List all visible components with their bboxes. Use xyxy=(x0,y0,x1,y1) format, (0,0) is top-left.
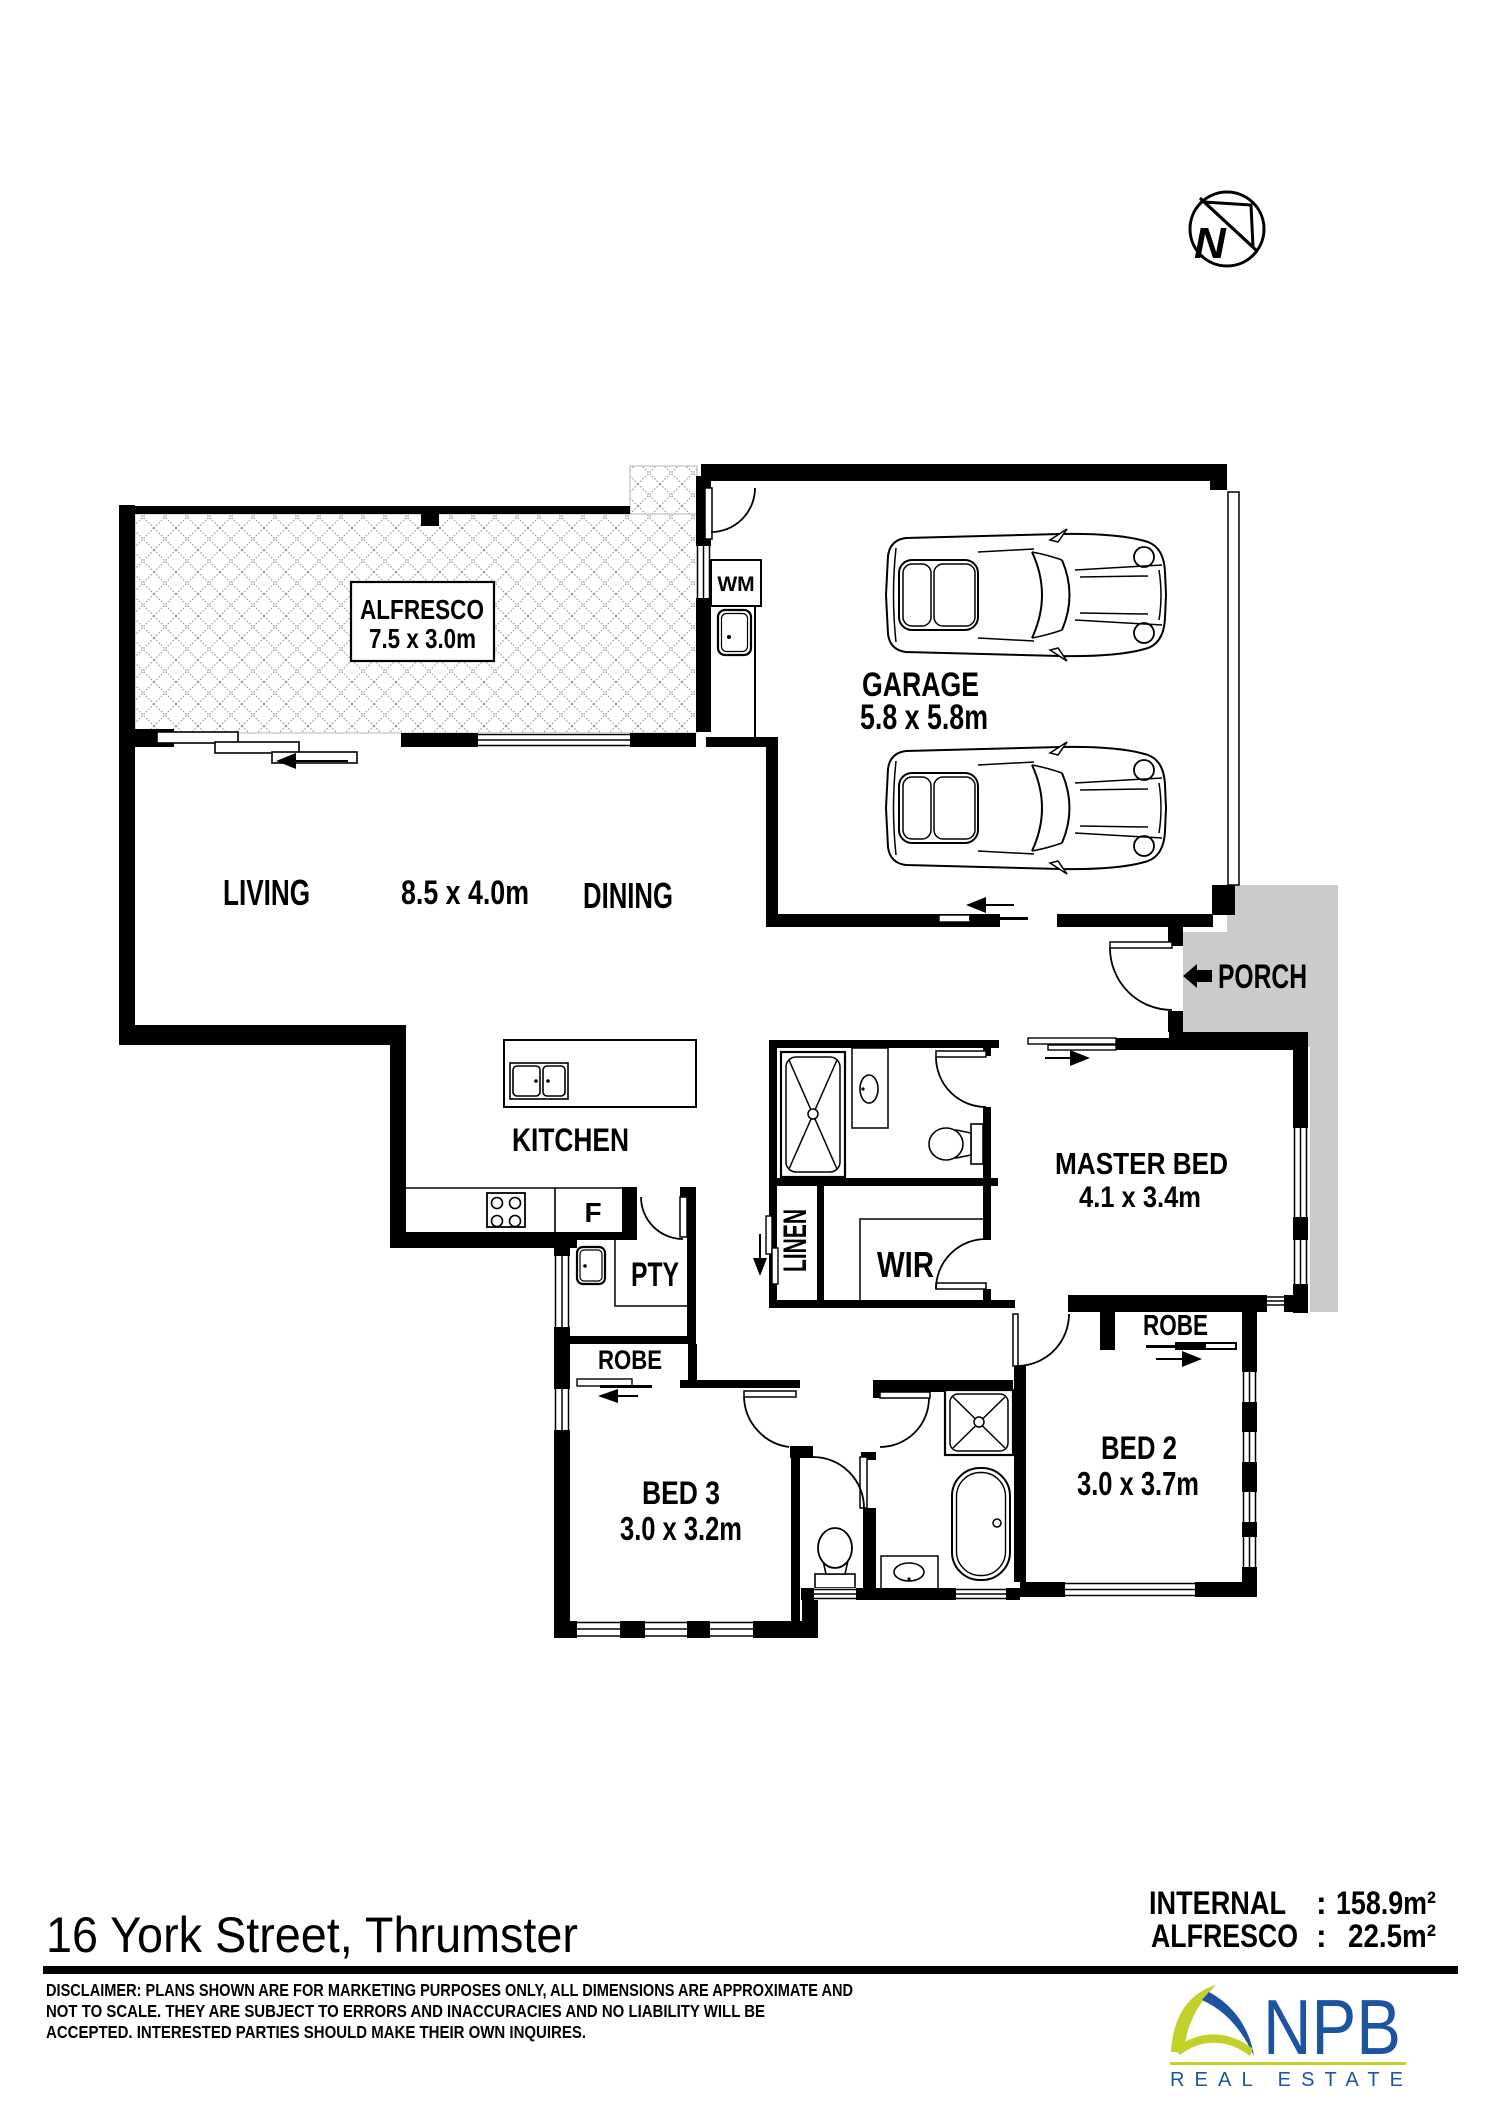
svg-text:INTERNAL: INTERNAL xyxy=(1149,1885,1286,1921)
svg-text::: : xyxy=(1316,1885,1327,1921)
svg-text:BED 2: BED 2 xyxy=(1101,1430,1177,1466)
svg-text:8.5 x 4.0m: 8.5 x 4.0m xyxy=(401,874,529,912)
svg-text:MASTER BED: MASTER BED xyxy=(1055,1146,1228,1181)
svg-text:3.0 x 3.7m: 3.0 x 3.7m xyxy=(1077,1465,1199,1502)
svg-text:NOT TO SCALE. THEY ARE SUBJE: NOT TO SCALE. THEY ARE SUBJECT TO ERRORS… xyxy=(46,2001,765,2021)
svg-text:22.5m²: 22.5m² xyxy=(1348,1918,1436,1954)
svg-text:ALFRESCO: ALFRESCO xyxy=(360,594,484,625)
svg-text:REAL ESTATE: REAL ESTATE xyxy=(1170,2069,1403,2091)
svg-text:DINING: DINING xyxy=(583,875,673,916)
svg-text:3.0 x 3.2m: 3.0 x 3.2m xyxy=(620,1510,742,1547)
svg-text:NPB: NPB xyxy=(1263,1983,1401,2071)
svg-text:BED 3: BED 3 xyxy=(642,1475,720,1511)
svg-text:PTY: PTY xyxy=(631,1256,679,1294)
svg-text:LIVING: LIVING xyxy=(223,872,310,913)
svg-text:PORCH: PORCH xyxy=(1218,958,1307,996)
svg-text:ALFRESCO: ALFRESCO xyxy=(1151,1918,1298,1954)
svg-text:5.8 x 5.8m: 5.8 x 5.8m xyxy=(860,698,988,737)
svg-text::: : xyxy=(1316,1918,1327,1954)
svg-text:ROBE: ROBE xyxy=(1143,1310,1208,1342)
svg-text:ROBE: ROBE xyxy=(598,1345,662,1375)
svg-text:DISCLAIMER: PLANS SHOWN ARE FO: DISCLAIMER: PLANS SHOWN ARE FOR MARKETIN… xyxy=(46,1980,853,2000)
svg-text:LINEN: LINEN xyxy=(777,1209,813,1272)
svg-text:ACCEPTED. INTERESTED PARTIES S: ACCEPTED. INTERESTED PARTIES SHOULD MAKE… xyxy=(46,2022,586,2042)
svg-text:N: N xyxy=(1194,219,1227,268)
svg-text:WM: WM xyxy=(717,573,754,596)
svg-text:16 York Street, Thrumster: 16 York Street, Thrumster xyxy=(46,1907,578,1963)
svg-text:WIR: WIR xyxy=(877,1244,934,1285)
svg-text:7.5 x 3.0m: 7.5 x 3.0m xyxy=(369,623,476,654)
svg-text:4.1 x 3.4m: 4.1 x 3.4m xyxy=(1079,1181,1201,1214)
svg-text:F: F xyxy=(584,1197,601,1228)
svg-text:KITCHEN: KITCHEN xyxy=(512,1122,629,1158)
svg-text:158.9m²: 158.9m² xyxy=(1336,1885,1436,1921)
